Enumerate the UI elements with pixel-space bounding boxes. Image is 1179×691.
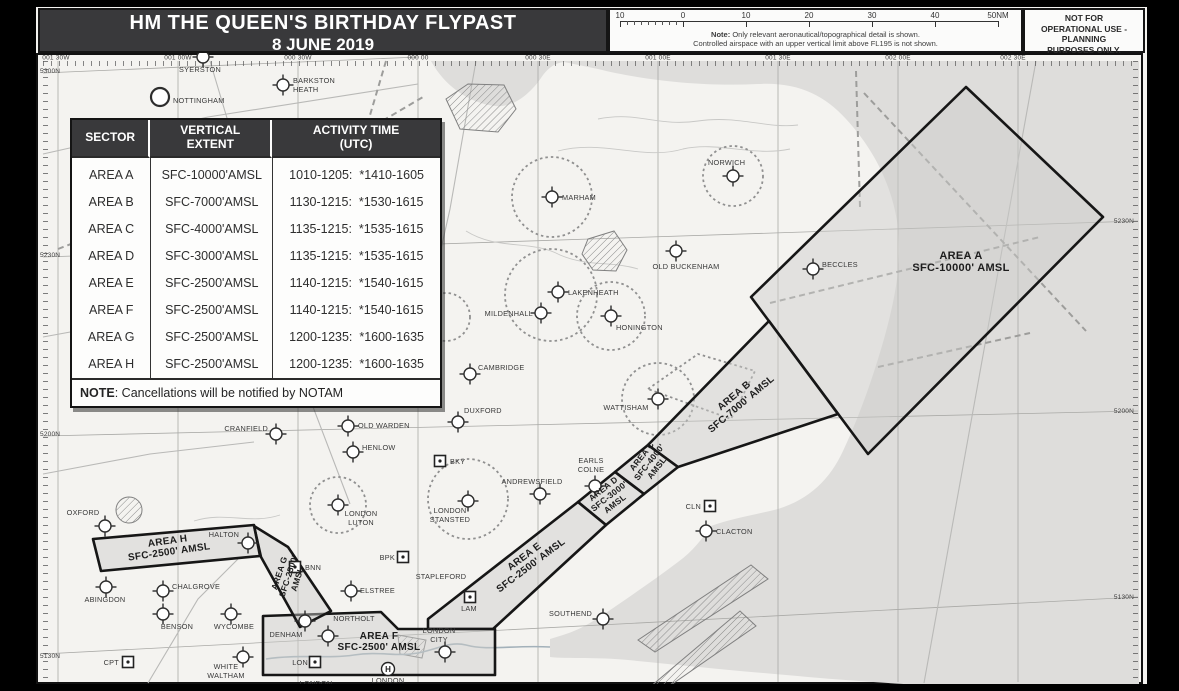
place-label: NOTTINGHAM [173,96,225,105]
place-label: LONDONHELIPORT [369,676,408,684]
table-cell: AREA H [72,351,150,378]
scale-tick-label: 40 [919,11,951,20]
place-label: BKY [450,457,465,466]
airfield-symbol-icon [345,585,357,597]
place-label: CRANFIELD [224,424,268,433]
scale-tick [746,21,747,27]
table-cell: 1200-1235: *1600-1635 [272,324,440,351]
place-lon: LON [292,657,320,668]
table-cell: AREA G [72,324,150,351]
table-cell: SFC-2500'AMSL [150,351,272,378]
chart-sheet: HM THE QUEEN'S BIRTHDAY FLYPAST 8 JUNE 2… [36,7,1147,684]
edge-label-top: 000 30E [525,55,551,62]
airfield-symbol-icon [464,368,476,380]
place-label: LAM [461,604,477,613]
table-cell: SFC-7000'AMSL [150,189,272,216]
place-label: BPK [380,553,395,562]
airfield-symbol-icon [552,286,564,298]
table-row: AREA HSFC-2500'AMSL1200-1235: *1600-1635 [72,351,440,378]
place-label: CAMBRIDGE [478,363,524,372]
airfield-symbol-icon [452,416,464,428]
airfield-symbol-icon [727,170,739,182]
place-london: LONDON [300,679,333,684]
table-row: AREA GSFC-2500'AMSL1200-1235: *1600-1635 [72,324,440,351]
table-cell: SFC-2500'AMSL [150,324,272,351]
scale-bar: Note: Only relevant aeronautical/topogra… [610,10,1021,51]
edge-label-left: 5300N [40,68,60,75]
edge-label-top: 001 30E [765,55,791,62]
edge-label-left: 5200N [40,431,60,438]
place-label: STAPLEFORD [416,572,467,581]
table-cell: AREA F [72,297,150,324]
activity-table: SECTORVERTICAL EXTENTACTIVITY TIME (UTC)… [72,120,440,378]
place-label: CHALGROVE [172,582,220,591]
table-cell: SFC-10000'AMSL [150,158,272,189]
airfield-symbol-icon [157,608,169,620]
place-label: OXFORD [67,508,100,517]
disclaimer-box: NOT FOR OPERATIONAL USE - PLANNING PURPO… [1023,8,1145,53]
edge-label-top: 000 00 [407,55,428,62]
table-row: AREA FSFC-2500'AMSL1140-1215: *1540-1615 [72,297,440,324]
chart-date: 8 JUNE 2019 [40,35,606,55]
column-header: VERTICAL EXTENT [150,120,272,158]
airfield-symbol-icon [534,488,546,500]
airfield-symbol-icon [807,263,819,275]
airfield-symbol-icon [700,525,712,537]
edge-label-left: 5230N [40,252,60,259]
table-cell: SFC-3000'AMSL [150,243,272,270]
table-cell: SFC-4000'AMSL [150,216,272,243]
scale-tick-label: 20 [793,11,825,20]
table-row: AREA ESFC-2500'AMSL1140-1215: *1540-1615 [72,270,440,297]
place-label: BECCLES [822,260,858,269]
place-label: NORTHOLT [333,614,375,623]
place-label: ABINGDON [85,595,126,604]
airfield-symbol-icon [535,307,547,319]
airfield-symbol-icon [605,310,617,322]
place-stapleford: STAPLEFORD [416,572,467,581]
airfield-symbol-icon [270,428,282,440]
table-header-row: SECTORVERTICAL EXTENTACTIVITY TIME (UTC) [72,120,440,158]
edge-label-top: 000 30W [284,55,312,62]
place-label: LONDONLUTON [345,509,378,527]
place-label: MARHAM [562,193,596,202]
scale-tick-label: 10 [604,11,636,20]
scale-note-line2: Controlled airspace with an upper vertic… [693,39,938,48]
place-label: HALTON [209,530,239,539]
column-header: ACTIVITY TIME (UTC) [272,120,440,158]
table-cell: 1140-1215: *1540-1615 [272,297,440,324]
edge-label-top: 001 30W [42,55,70,62]
edge-label-top: 001 00W [164,55,192,62]
place-label: NORWICH [708,158,745,167]
scale-tick [935,21,936,27]
edge-label-right: 5130N [1114,594,1134,601]
place-label: LON [292,658,308,667]
table-cell: AREA A [72,158,150,189]
scale-tick [998,21,999,27]
place-label: WYCOMBE [214,622,254,631]
place-label: CLN [686,502,701,511]
edge-label-top: 002 00E [885,55,911,62]
svg-text:H: H [385,665,391,674]
table-row: AREA DSFC-3000'AMSL1135-1215: *1535-1615 [72,243,440,270]
airfield-symbol-icon [322,630,334,642]
airfield-symbol-icon [225,608,237,620]
scale-tick-label: 30 [856,11,888,20]
scale-note-line1: Only relevant aeronautical/topographical… [732,30,920,39]
table-cell: 1140-1215: *1540-1615 [272,270,440,297]
scale-tick [683,21,684,27]
place-bky: BKY [435,456,466,467]
table-cell: 1010-1205: *1410-1605 [272,158,440,189]
place-label: BENSON [161,622,193,631]
place-label: SYERSTON [179,65,221,74]
airfield-symbol-icon [439,646,451,658]
place-bpk: BPK [380,552,409,563]
table-cell: AREA B [72,189,150,216]
place-label: SOUTHEND [549,609,592,618]
chart-title-box: HM THE QUEEN'S BIRTHDAY FLYPAST 8 JUNE 2… [38,8,608,53]
table-note-text: : Cancellations will be notified by NOTA… [115,386,343,400]
edge-label-left: 5130N [40,653,60,660]
place-label: CLACTON [716,527,753,536]
table-cell: SFC-2500'AMSL [150,270,272,297]
edge-label-right: 5230N [1114,218,1134,225]
scale-note-label: Note: [711,30,730,39]
table-row: AREA BSFC-7000'AMSL1130-1215: *1530-1615 [72,189,440,216]
edge-label-right: 5200N [1114,408,1134,415]
airfield-symbol-icon [277,79,289,91]
table-note-label: NOTE [80,386,115,400]
edge-label-top: 002 30E [1000,55,1026,62]
place-cln: CLN [686,501,716,512]
place-cpt: CPT [104,657,134,668]
place-label: WATTISHAM [603,403,648,412]
table-cell: AREA C [72,216,150,243]
place-label: DENHAM [269,630,302,639]
airfield-symbol-icon [597,613,609,625]
chart-title: HM THE QUEEN'S BIRTHDAY FLYPAST [40,12,606,35]
airfield-symbol-icon [342,420,354,432]
scale-tick [809,21,810,27]
airfield-symbol-icon [332,499,344,511]
place-label: DUXFORD [464,406,502,415]
place-label: HONINGTON [616,323,663,332]
place-label: ANDREWSFIELD [502,477,563,486]
column-header: SECTOR [72,120,150,158]
airfield-symbol-icon [157,585,169,597]
page: { "header": { "title_line1": "HM THE QUE… [0,0,1179,691]
table-cell: SFC-2500'AMSL [150,297,272,324]
airfield-symbol-icon [652,393,664,405]
place-label: HENLOW [362,443,396,452]
scale-tick [620,21,621,27]
place-label: CPT [104,658,120,667]
place-label: OLD BUCKENHAM [653,262,720,271]
scale-subdivisions [620,21,683,25]
table-cell: 1200-1235: *1600-1635 [272,351,440,378]
airfield-symbol-icon [100,581,112,593]
table-cell: 1135-1215: *1535-1615 [272,216,440,243]
airfield-symbol-icon [347,446,359,458]
place-label: EARLSCOLNE [578,456,604,474]
table-cell: 1130-1215: *1530-1615 [272,189,440,216]
table-cell: 1135-1215: *1535-1615 [272,243,440,270]
place-label: LONDONSTANSTED [430,506,470,524]
airfield-symbol-icon [197,53,209,63]
scale-tick-label: 50NM [982,11,1014,20]
airfield-symbol-icon [242,537,254,549]
city-symbol-icon [151,88,169,106]
scale-tick-label: 0 [667,11,699,20]
table-note: NOTE: Cancellations will be notified by … [72,378,440,406]
place-label: BNN [305,563,321,572]
scale-tick [872,21,873,27]
airfield-symbol-icon [237,651,249,663]
place-label: ELSTREE [360,586,395,595]
table-cell: AREA E [72,270,150,297]
table-cell: AREA D [72,243,150,270]
airfield-symbol-icon [670,245,682,257]
edge-label-top: 001 00E [645,55,671,62]
place-label: MILDENHALL [485,309,533,318]
table-row: AREA ASFC-10000'AMSL1010-1205: *1410-160… [72,158,440,189]
place-label: LAKENHEATH [568,288,619,297]
place-label: LONDON [300,679,333,684]
scale-tick-label: 10 [730,11,762,20]
table-row: AREA CSFC-4000'AMSL1135-1215: *1535-1615 [72,216,440,243]
activity-table-panel: SECTORVERTICAL EXTENTACTIVITY TIME (UTC)… [70,118,442,408]
airfield-symbol-icon [299,615,311,627]
place-label: OLD WARDEN [358,421,410,430]
scale-note: Note: Only relevant aeronautical/topogra… [610,30,1021,49]
airfield-symbol-icon [99,520,111,532]
airfield-symbol-icon [546,191,558,203]
scale-bar-box: Note: Only relevant aeronautical/topogra… [608,8,1023,53]
